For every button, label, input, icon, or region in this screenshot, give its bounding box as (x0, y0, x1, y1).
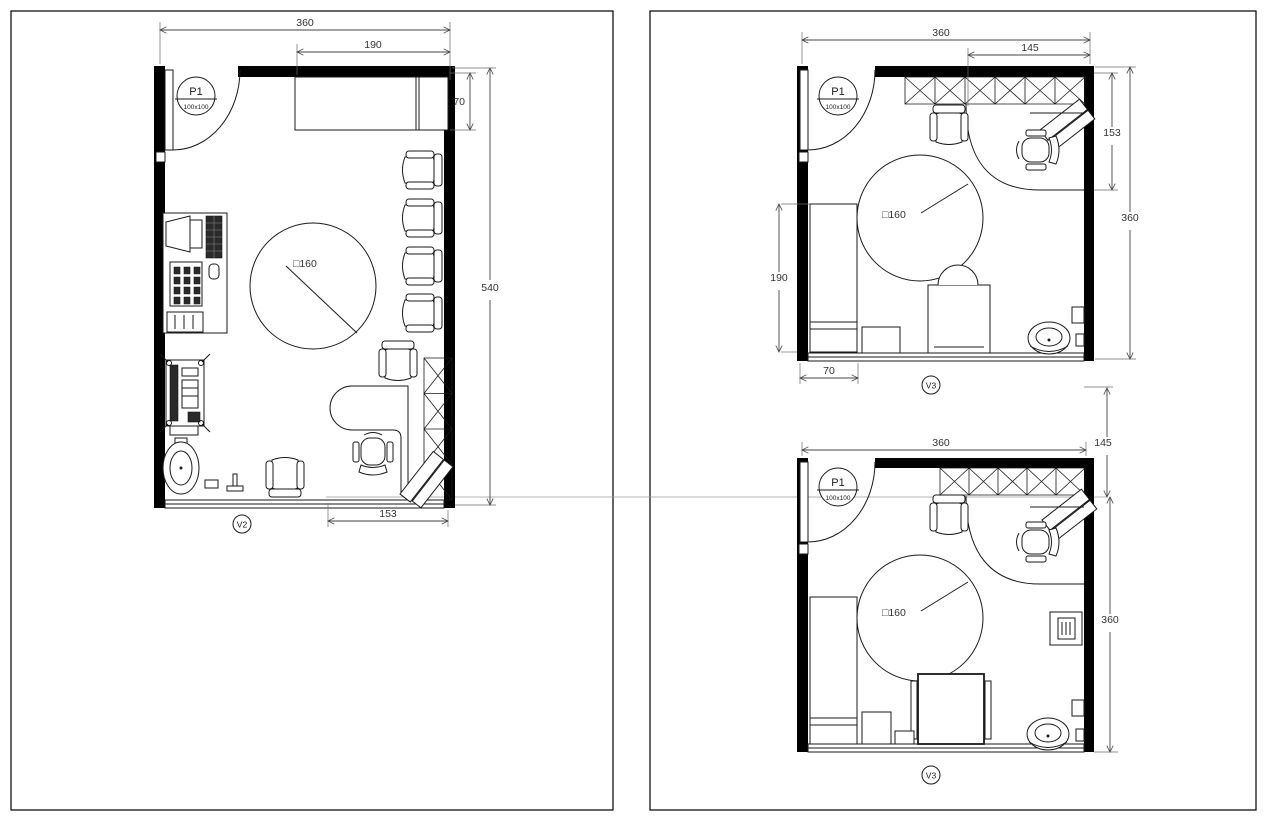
side-table (862, 327, 900, 353)
mouse-icon (209, 264, 219, 279)
printer-icon (167, 312, 203, 332)
door-leaf (165, 70, 173, 150)
dim-right-upper: 70 (453, 96, 465, 108)
stool-icon (227, 486, 243, 491)
dim-right-total: 360 (1121, 212, 1139, 224)
door-size: 100x100 (826, 104, 851, 111)
dim-right-total: 360 (1101, 614, 1119, 626)
table-label: □160 (882, 209, 906, 221)
side-chair (930, 495, 968, 535)
small-box (895, 731, 914, 744)
drawing-page: P1 100x100 □160 (0, 0, 1267, 825)
dim-right-total: 540 (481, 282, 499, 294)
wall-device (1050, 612, 1082, 645)
dim-top: 360 (296, 17, 314, 29)
wall-fitting (1076, 334, 1084, 346)
dim-right-upper: 153 (1103, 127, 1121, 139)
computer-workstation (163, 213, 227, 333)
desk-side-chair (379, 341, 417, 381)
side-table (862, 712, 891, 744)
door-leaf (800, 462, 808, 542)
wall-dispenser (1072, 700, 1084, 716)
dim-right-gap: 145 (1094, 437, 1112, 449)
bench-counter (295, 77, 448, 130)
door-leaf (800, 70, 808, 150)
dim-top-inner: 190 (364, 39, 382, 51)
guest-chair (266, 458, 304, 498)
wall-dispenser (1072, 307, 1084, 323)
cad-canvas: P1 100x100 □160 (0, 0, 1267, 825)
dim-bottom-left: 70 (823, 365, 835, 377)
side-chair (930, 105, 968, 145)
door-tag: P1 (831, 477, 844, 489)
door-size: 100x100 (184, 104, 209, 111)
dim-top-inner: 145 (1021, 42, 1039, 54)
dim-bottom: 153 (379, 508, 397, 520)
window-tag-label: V2 (237, 520, 248, 530)
door-tag: P1 (831, 86, 844, 98)
equipment-cart (160, 354, 210, 435)
wall-switch (156, 152, 165, 162)
wall-switch (799, 152, 808, 162)
table-label: □160 (882, 607, 906, 619)
dim-top: 360 (932, 437, 950, 449)
window-tag-label: V3 (926, 771, 937, 781)
crt-monitor-icon (166, 216, 190, 252)
window-tag-label: V3 (926, 381, 937, 391)
wall-switch (799, 544, 808, 554)
door-tag: P1 (189, 86, 202, 98)
door-size: 100x100 (826, 495, 851, 502)
left-sheet (11, 11, 613, 810)
dim-left: 190 (770, 272, 788, 284)
wall-fitting (1076, 729, 1084, 741)
table-label: □160 (293, 258, 317, 270)
dim-top: 360 (932, 27, 950, 39)
